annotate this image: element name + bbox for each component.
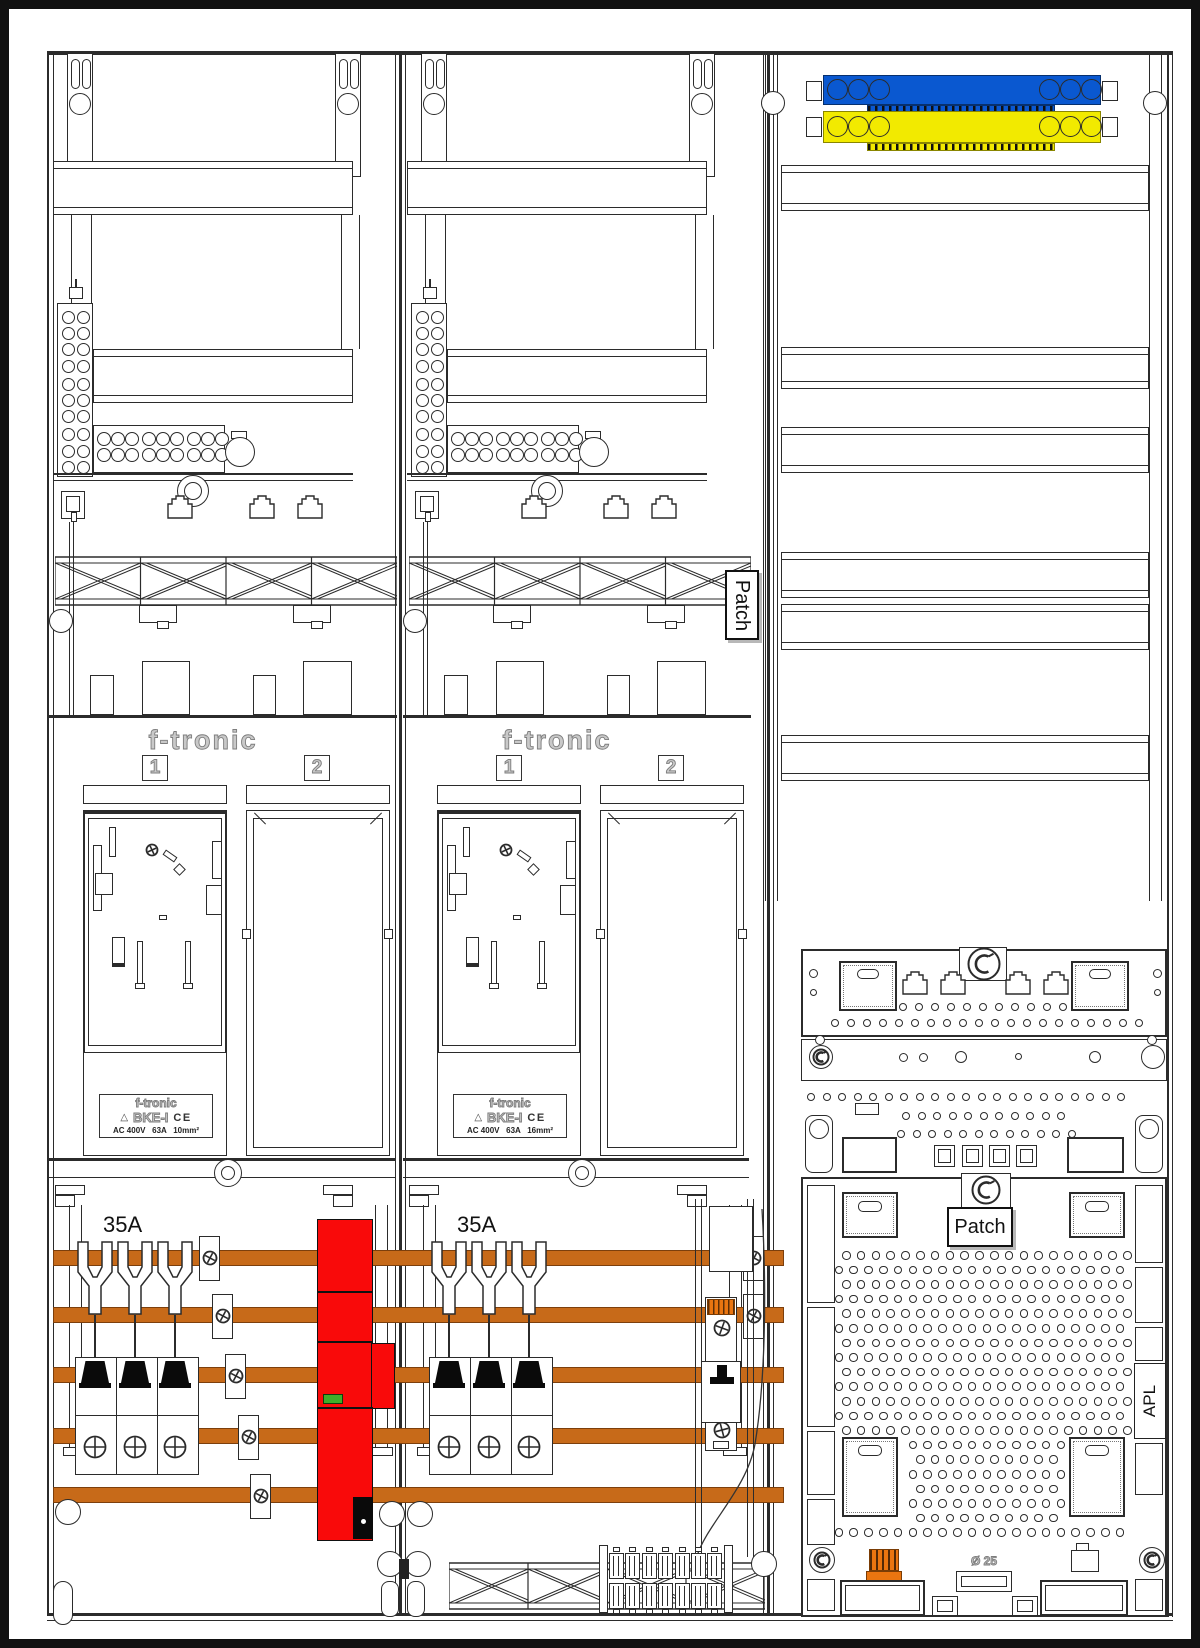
busbar-tap-claw: [157, 1241, 193, 1315]
rj45-jack-icon: [940, 971, 966, 995]
breaker-handle[interactable]: [121, 1361, 149, 1383]
busbar-tap-claw: [511, 1241, 547, 1315]
module-slot: [857, 969, 879, 979]
screw-icon: [499, 843, 513, 857]
screw-icon: [437, 1435, 461, 1459]
wire: [689, 1204, 779, 1564]
patch-panel-lock-knob[interactable]: [971, 1175, 1001, 1205]
sls-handle[interactable]: [353, 1497, 373, 1539]
screw-icon: [145, 843, 159, 857]
bke-type-plate-field1: f-tronic △ BKE-I CE AC 400V 63A 10mm²: [99, 1094, 213, 1138]
meter-slot1-number-field1: 1: [142, 755, 168, 781]
approval-mark-icon: △: [474, 1112, 482, 1123]
screw-icon: [163, 1435, 187, 1459]
f-tronic-logo-field1: f-tronic: [103, 725, 303, 755]
busbar-tap-claw: [471, 1241, 507, 1315]
patch-duct-label-text: Patch: [731, 579, 754, 630]
rj45-jack-icon: [521, 495, 547, 519]
breaker-handle[interactable]: [435, 1361, 463, 1383]
breaker-rating-field2: 35A: [457, 1212, 496, 1238]
sls-status-indicator: [323, 1394, 343, 1404]
rj45-jack-icon: [297, 495, 323, 519]
type-plate-rating: AC 400V 63A 16mm²: [454, 1126, 566, 1135]
breaker-handle[interactable]: [475, 1361, 503, 1383]
screw-icon: [215, 1308, 231, 1324]
f-tronic-logo-field2: f-tronic: [457, 725, 657, 755]
meter-cabinet-drawing: f-tronic f-tronic 1 2 1 2 f-tronic △ BKE…: [0, 0, 1200, 1648]
busbar-tap-claw: [117, 1241, 153, 1315]
grommet-diameter-label: Ø 25: [951, 1554, 1017, 1568]
rail-lock-left[interactable]: [812, 1048, 830, 1066]
screw-icon: [241, 1429, 257, 1445]
type-plate-brand: f-tronic: [100, 1097, 212, 1110]
screw-icon: [123, 1435, 147, 1459]
patch-panel-label: Patch: [947, 1207, 1013, 1247]
bke-type-plate-field2: f-tronic △ BKE-I CE AC 400V 63A 16mm²: [453, 1094, 567, 1138]
type-plate-brand: f-tronic: [454, 1097, 566, 1110]
breaker-rating-field1: 35A: [103, 1212, 142, 1238]
apl-label-text: APL: [1140, 1385, 1160, 1417]
breaker-handle[interactable]: [161, 1361, 189, 1383]
meter-slot2-number-field2: 2: [658, 755, 684, 781]
rj45-jack-icon: [651, 495, 677, 519]
type-plate-rating: AC 400V 63A 10mm²: [100, 1126, 212, 1135]
patch-duct-label: Patch: [725, 570, 759, 640]
type-plate-model: BKE-I: [487, 1111, 522, 1124]
meter-slot2-number-field1: 2: [304, 755, 330, 781]
screw-icon: [202, 1250, 218, 1266]
screw-icon: [253, 1488, 269, 1504]
screw-icon: [83, 1435, 107, 1459]
screw-icon: [517, 1435, 541, 1459]
rj45-jack-icon: [1043, 971, 1069, 995]
wiring-duct-upper: [55, 555, 397, 607]
rj45-jack-icon: [603, 495, 629, 519]
rj45-jack-icon: [167, 495, 193, 519]
breaker-handle[interactable]: [81, 1361, 109, 1383]
screw-icon: [477, 1435, 501, 1459]
busbar-tap-claw: [77, 1241, 113, 1315]
mounting-screw: [225, 437, 255, 467]
module-slot: [1089, 969, 1111, 979]
media-panel-lock-knob[interactable]: [967, 947, 1001, 981]
wiring-duct-upper: [409, 555, 751, 607]
busbar-tap-claw: [431, 1241, 467, 1315]
type-plate-model: BKE-I: [133, 1111, 168, 1124]
rj45-jack-icon: [1005, 971, 1031, 995]
rj45-jack-icon: [902, 971, 928, 995]
ce-mark: CE: [173, 1112, 191, 1124]
mounting-screw: [579, 437, 609, 467]
panel-keyhole-right[interactable]: [1143, 1551, 1161, 1569]
ce-mark: CE: [527, 1112, 545, 1124]
panel-keyhole-left[interactable]: [813, 1551, 831, 1569]
approval-mark-icon: △: [120, 1112, 128, 1123]
meter-slot1-number-field2: 1: [496, 755, 522, 781]
cable-connector-teeth: [869, 1549, 899, 1571]
screw-icon: [228, 1368, 244, 1384]
apl-label: APL: [1134, 1363, 1166, 1439]
rj45-jack-icon: [249, 495, 275, 519]
breaker-handle[interactable]: [515, 1361, 543, 1383]
cabinet-geometry: [9, 9, 1191, 1639]
